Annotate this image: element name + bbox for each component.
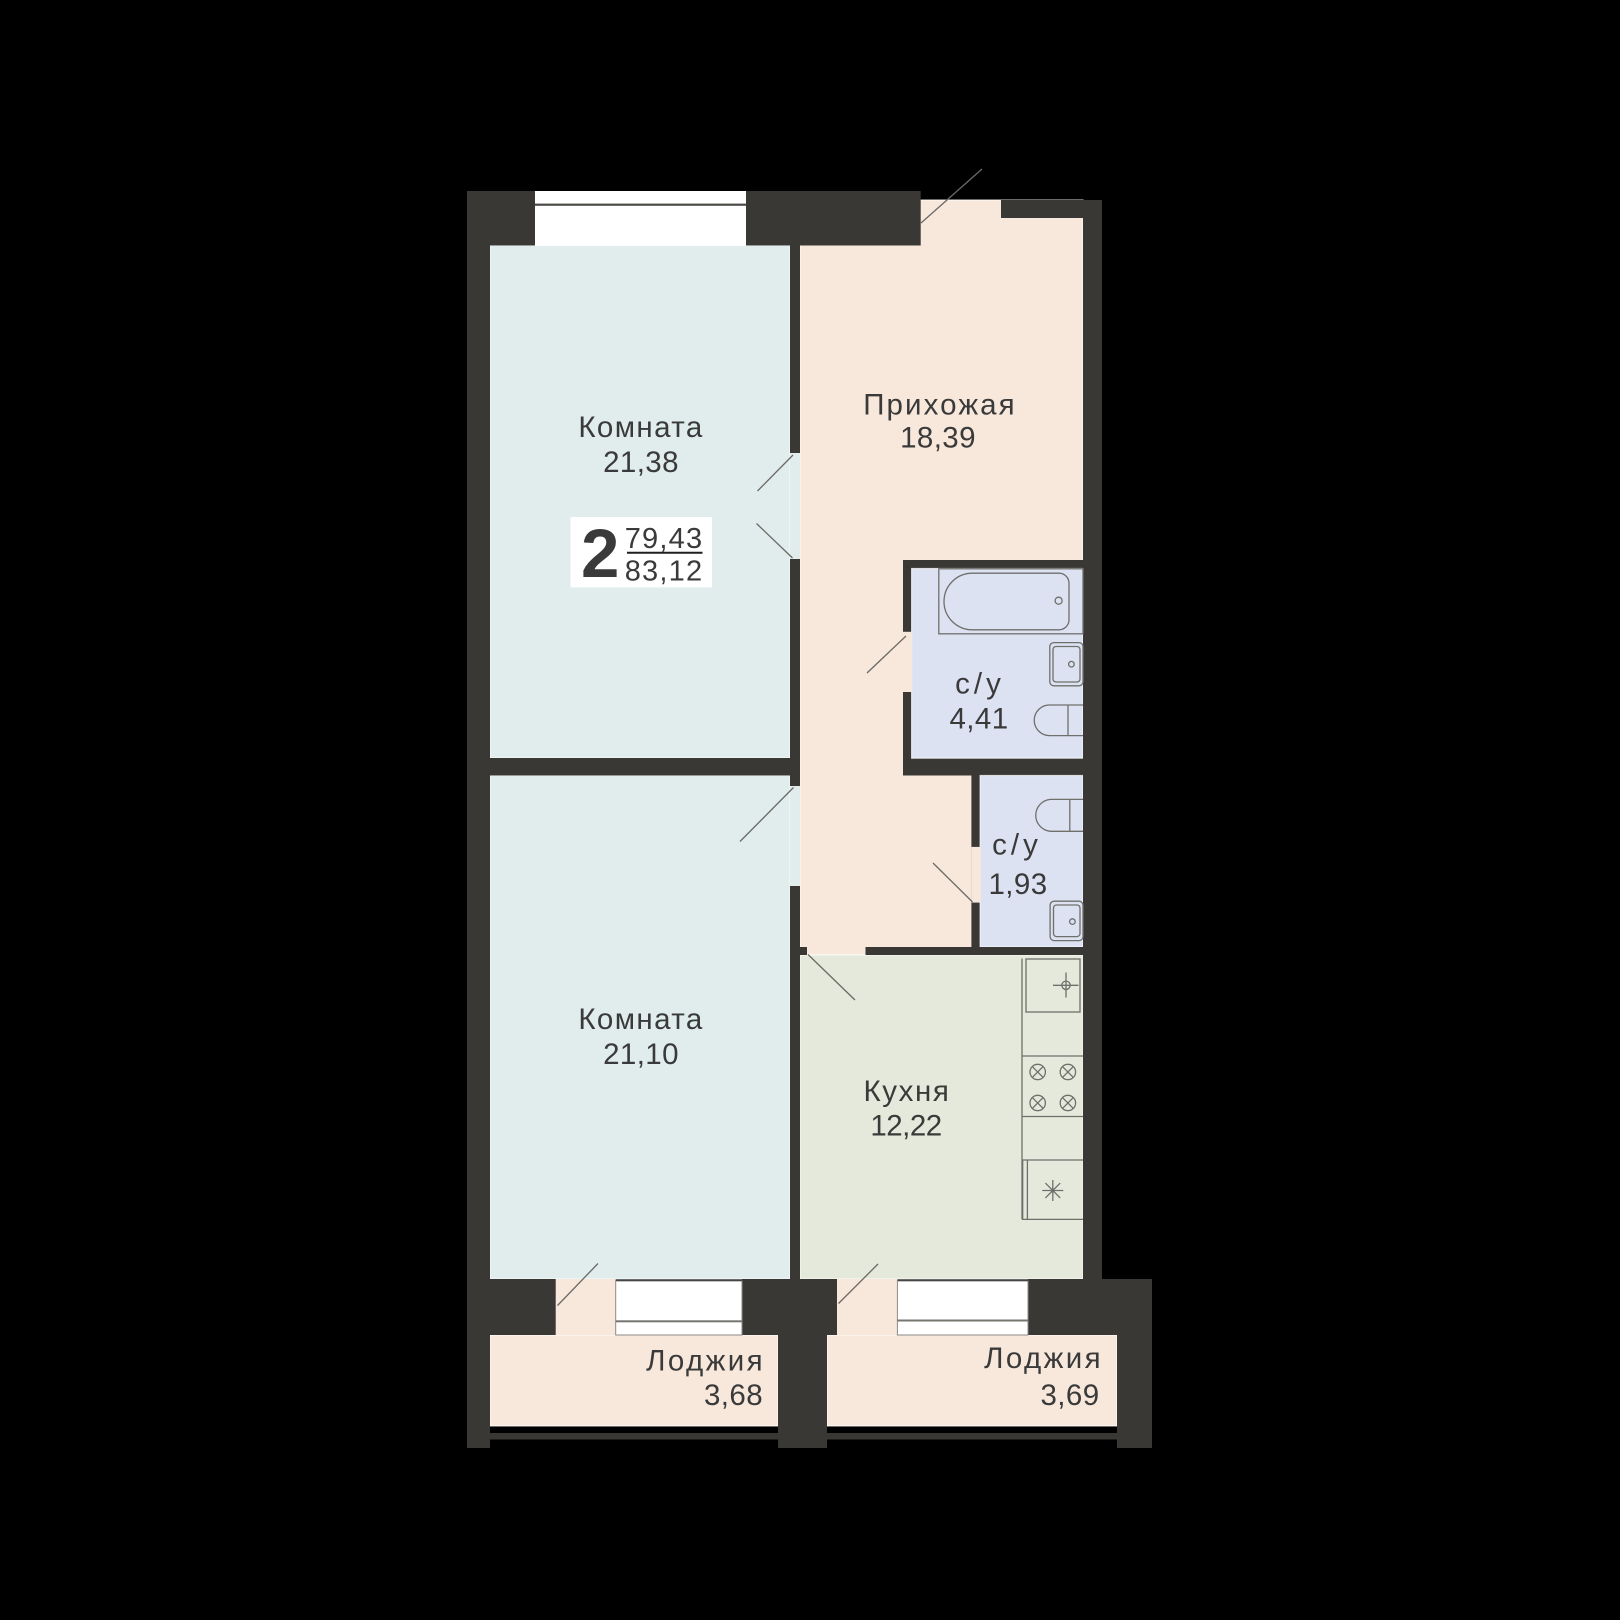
svg-text:Комната: Комната: [578, 1003, 703, 1036]
svg-text:83,12: 83,12: [625, 556, 704, 588]
svg-text:3,69: 3,69: [1040, 1379, 1099, 1412]
svg-text:1,93: 1,93: [988, 868, 1047, 901]
svg-text:с/у: с/у: [955, 668, 1005, 701]
svg-text:Кухня: Кухня: [864, 1075, 951, 1108]
svg-text:Прихожая: Прихожая: [863, 389, 1017, 422]
svg-text:Лоджия: Лоджия: [646, 1345, 765, 1378]
svg-text:3,68: 3,68: [704, 1379, 763, 1412]
svg-text:18,39: 18,39: [900, 422, 976, 455]
svg-text:с/у: с/у: [992, 829, 1042, 862]
svg-text:12,22: 12,22: [870, 1110, 941, 1143]
svg-text:79,43: 79,43: [625, 523, 704, 555]
svg-text:Комната: Комната: [578, 411, 703, 444]
svg-text:21,10: 21,10: [603, 1038, 679, 1071]
svg-text:2: 2: [581, 515, 619, 592]
svg-text:21,38: 21,38: [603, 446, 679, 479]
svg-text:4,41: 4,41: [949, 703, 1008, 736]
svg-text:Лоджия: Лоджия: [984, 1342, 1103, 1375]
